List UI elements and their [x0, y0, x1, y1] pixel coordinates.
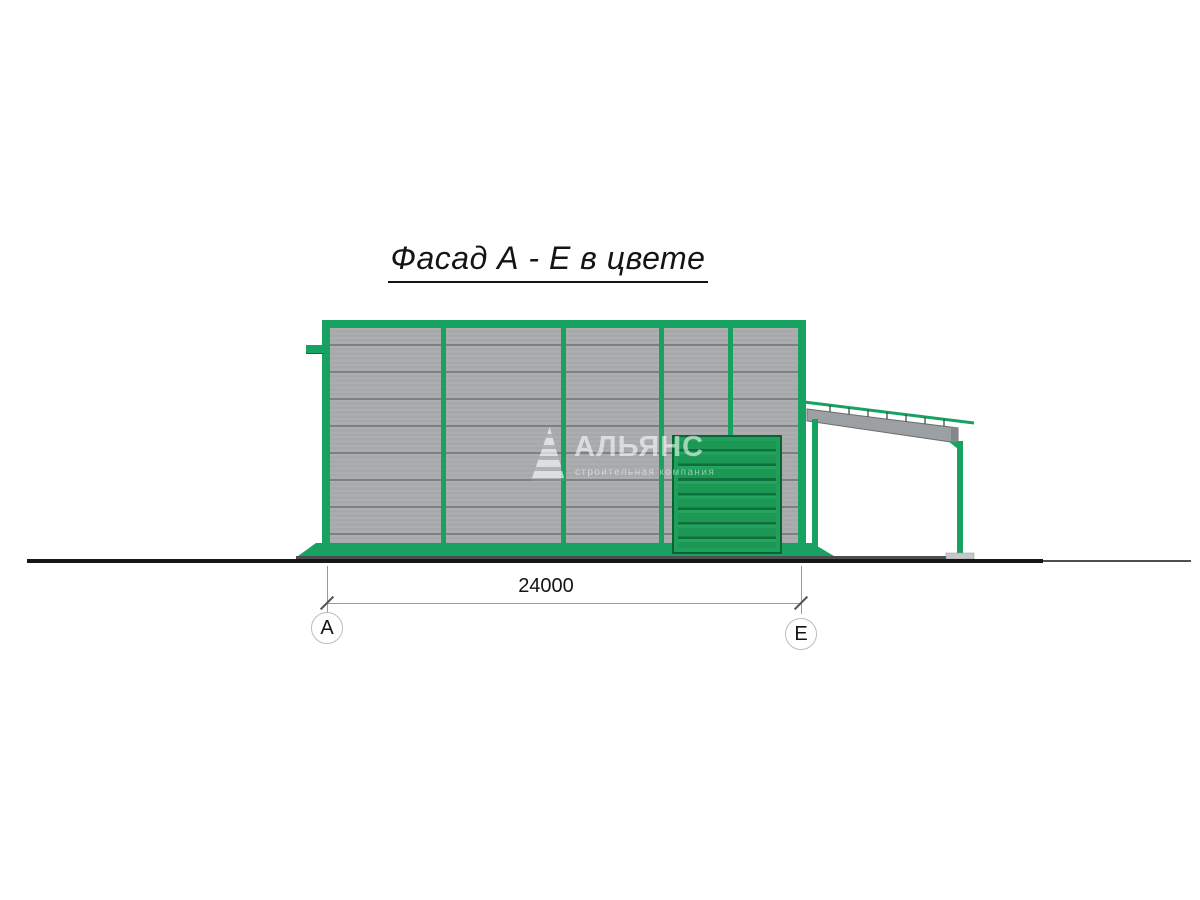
facade-mullion — [728, 328, 733, 437]
drawing-title: Фасад А - Е в цвете — [388, 240, 708, 283]
canopy-beam — [807, 409, 958, 443]
canopy-beam-endcap — [951, 427, 958, 443]
canopy-roof — [804, 402, 974, 443]
wall-stub — [306, 345, 324, 354]
ground-line-extension — [1043, 560, 1191, 562]
canopy-post-left — [812, 419, 818, 553]
axis-marker-a: А — [311, 612, 343, 644]
axis-label-a: А — [320, 617, 333, 640]
extension-line-right — [801, 566, 802, 614]
ground-line — [27, 559, 1043, 563]
canopy-post-right — [957, 441, 963, 556]
extension-line-left — [327, 566, 328, 614]
facade-mullion — [659, 328, 664, 543]
canopy — [800, 395, 985, 565]
facade-mullion — [561, 328, 566, 543]
facade-mullion — [441, 328, 446, 543]
dimension-line — [327, 603, 801, 604]
axis-label-e: Е — [794, 623, 807, 646]
axis-marker-e: Е — [785, 618, 817, 650]
sectional-door — [672, 435, 782, 554]
dimension-value: 24000 — [446, 575, 646, 598]
elevation-drawing: Фасад А - Е в цвете — [0, 0, 1200, 900]
